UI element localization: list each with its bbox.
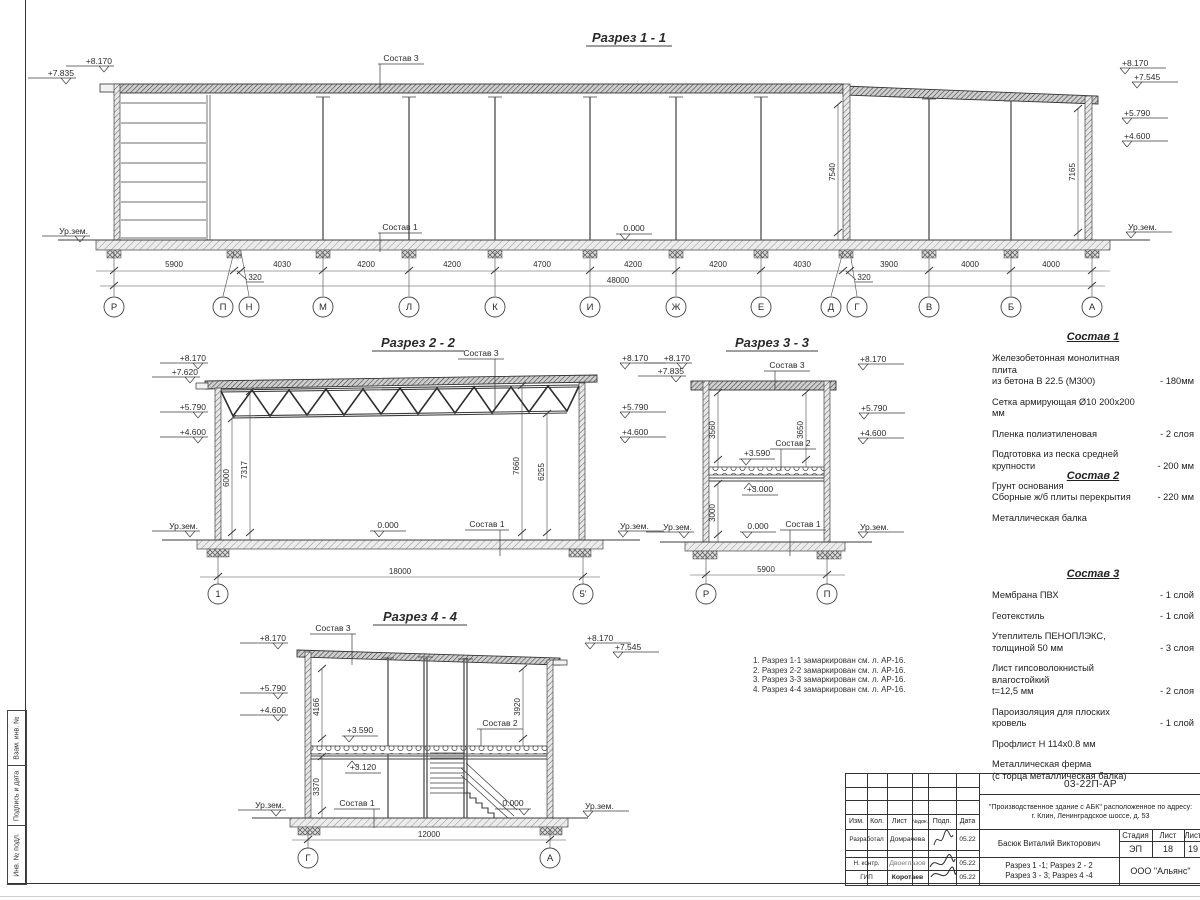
foundation-pads bbox=[693, 551, 841, 559]
dim-label: 4700 bbox=[533, 260, 551, 269]
list-item: Геотекстиль - 1 слой bbox=[992, 611, 1194, 623]
item-value: - 3 слоя bbox=[1160, 643, 1194, 655]
list-item: Сетка армирующая Ø10 200х200 мм bbox=[992, 397, 1194, 420]
ground-level-label: Ур.зем. bbox=[663, 522, 692, 532]
stair-stringers bbox=[461, 763, 517, 819]
sostav-1-title: Состав 1 bbox=[992, 331, 1194, 343]
list-item: Металлическая балка bbox=[992, 513, 1194, 525]
section-2-2: Разрез 2 - 2 6000 7317 7660 6255 Состав … bbox=[152, 335, 666, 604]
level-label: +7.545 bbox=[615, 642, 642, 652]
tb-object: "Производственное здание с АБК" располож… bbox=[979, 794, 1200, 829]
item-value: - 1 слой bbox=[1160, 590, 1194, 602]
level-label: +7.620 bbox=[172, 367, 199, 377]
vdim-label: 3920 bbox=[513, 698, 522, 716]
stair-steps bbox=[464, 793, 494, 818]
dim-label: 320 bbox=[857, 273, 871, 282]
ground-level-label: Ур.зем. bbox=[860, 522, 889, 532]
dim-label: 4200 bbox=[357, 260, 375, 269]
layer-label-sostav1: Состав 1 bbox=[339, 798, 375, 808]
level-label: +8.170 bbox=[1122, 58, 1149, 68]
grid-bubble-label: П bbox=[220, 302, 227, 313]
level-label: +4.600 bbox=[180, 427, 207, 437]
grid-bubble-label: Е bbox=[758, 302, 764, 313]
list-item: Сборные ж/б плиты перекрытия - 220 мм bbox=[992, 492, 1194, 504]
grid-bubble-label: К bbox=[492, 302, 498, 313]
dim-label: 4030 bbox=[793, 260, 811, 269]
tb-col-podp: Подп. bbox=[928, 814, 956, 829]
elevation-zero: 0.000 bbox=[377, 520, 399, 530]
level-label: +5.790 bbox=[180, 402, 207, 412]
floor-slab bbox=[685, 542, 845, 551]
grid-bubble-label: 5' bbox=[579, 589, 586, 600]
ground-level-label: Ур.зем. bbox=[169, 521, 198, 531]
list-item: Мембрана ПВХ - 1 слой bbox=[992, 590, 1194, 602]
roof-slab bbox=[114, 84, 843, 93]
level-label: +4.600 bbox=[860, 428, 887, 438]
level-label: +5.790 bbox=[1124, 108, 1151, 118]
elevation-label: +3.590 bbox=[347, 725, 374, 735]
level-label: +8.170 bbox=[260, 633, 287, 643]
elevation-label: +3.590 bbox=[744, 448, 771, 458]
steel-beam bbox=[311, 756, 547, 759]
wall-right bbox=[579, 383, 585, 540]
item-text: Сборные ж/б плиты перекрытия bbox=[992, 492, 1131, 504]
title-block: Изм. Кол. Лист №док. Подп. Дата Разработ… bbox=[845, 773, 1200, 886]
item-text: Подготовка из песка средней bbox=[992, 449, 1118, 461]
wall-right bbox=[547, 660, 553, 818]
ground-level-label: Ур.зем. bbox=[620, 521, 649, 531]
layer-label-sostav3: Состав 3 bbox=[463, 348, 499, 358]
grid-bubble-label: А bbox=[547, 853, 554, 864]
grid-bubble-label: П bbox=[824, 589, 831, 600]
tb-sheet-label: Лист bbox=[1152, 829, 1184, 841]
vdim-label: 7540 bbox=[828, 163, 837, 181]
tb-sheets-value: 19 bbox=[1184, 841, 1200, 857]
dim-label: 5900 bbox=[165, 260, 183, 269]
dim-label-total: 5900 bbox=[757, 565, 775, 574]
floor-slab bbox=[197, 540, 603, 549]
side-strip: Взам. инв. № Подпись и дата Инв. № подл. bbox=[7, 710, 27, 885]
wall-left bbox=[703, 381, 709, 552]
grid-bubble-label: Ж bbox=[672, 302, 681, 313]
grid-bubble-label: В bbox=[926, 302, 932, 313]
sostav-2-title: Состав 2 bbox=[992, 470, 1194, 482]
roof-slab bbox=[691, 381, 836, 390]
level-label: +8.170 bbox=[180, 353, 207, 363]
item-text: Геотекстиль bbox=[992, 611, 1044, 623]
item-text: толщиной 50 мм bbox=[992, 643, 1106, 655]
list-item: Профлист Н 114х0.8 мм bbox=[992, 739, 1194, 751]
list-item: Утеплитель ПЕНОПЛЭКС, толщиной 50 мм - 3… bbox=[992, 631, 1194, 654]
vdim-label: 7660 bbox=[512, 457, 521, 475]
layer-label-sostav3: Состав 3 bbox=[769, 360, 805, 370]
sostav-3-title: Состав 3 bbox=[992, 568, 1194, 580]
dim-label: 4030 bbox=[273, 260, 291, 269]
note-line: 2. Разрез 2-2 замаркирован см. л. АР-16. bbox=[753, 666, 906, 676]
grid-bubble-label: Г bbox=[305, 853, 310, 864]
grid-bubble-label: Л bbox=[406, 302, 412, 313]
truss-chords bbox=[221, 385, 579, 418]
side-cell: Взам. инв. № bbox=[8, 711, 26, 766]
item-value: - 1 слой bbox=[1160, 718, 1194, 730]
section-title: Разрез 3 - 3 bbox=[735, 335, 810, 350]
grid-bubble-label: Р bbox=[111, 302, 117, 313]
tb-stage-value: ЭП bbox=[1119, 841, 1152, 857]
level-label: +8.170 bbox=[622, 353, 649, 363]
floor-plates bbox=[709, 467, 824, 475]
grid-bubbles bbox=[104, 297, 1102, 317]
item-value: - 2 слоя bbox=[1160, 429, 1194, 441]
item-text: t=12,5 мм bbox=[992, 686, 1144, 698]
tb-role: Н. контр. bbox=[846, 857, 887, 870]
tb-date: 05.22 bbox=[956, 829, 979, 850]
item-text: Металлическая ферма bbox=[992, 759, 1127, 771]
tb-col-list: Лист bbox=[887, 814, 912, 829]
dim-label: 4200 bbox=[709, 260, 727, 269]
list-item: Железобетонная монолитная плита из бетон… bbox=[992, 353, 1194, 388]
foundation-pads bbox=[107, 250, 1099, 258]
side-cell-label: Подпись и дата bbox=[14, 770, 21, 820]
tb-col-kol: Кол. bbox=[867, 814, 887, 829]
side-cell: Подпись и дата bbox=[8, 766, 26, 826]
grid-bubble-label: Р bbox=[703, 589, 709, 600]
wall-left bbox=[215, 388, 221, 540]
floor-slab bbox=[96, 240, 1110, 250]
signature-icon bbox=[930, 854, 956, 877]
layer-label-sostav3: Состав 3 bbox=[383, 53, 419, 63]
item-text: Железобетонная монолитная плита bbox=[992, 353, 1144, 376]
tb-object-line: г. Клин, Ленинградское шоссе, д. 53 bbox=[1032, 812, 1150, 821]
vdim-label: 4166 bbox=[312, 698, 321, 716]
dim-label: 4200 bbox=[443, 260, 461, 269]
level-label: +7.545 bbox=[1134, 72, 1161, 82]
vdim-label: 6000 bbox=[222, 469, 231, 487]
dim-label-total: 48000 bbox=[607, 276, 630, 285]
note-line: 3. Разрез 3-3 замаркирован см. л. АР-16. bbox=[753, 675, 906, 685]
elevation-zero: 0.000 bbox=[623, 223, 645, 233]
tb-sheet-title: Разрез 1 -1; Разрез 2 - 2 Разрез 3 - 3; … bbox=[979, 857, 1119, 885]
item-value: - 220 мм bbox=[1157, 492, 1194, 504]
item-text: Лист гипсоволокнистый влагостойкий bbox=[992, 663, 1144, 686]
wall-right bbox=[1085, 96, 1092, 243]
level-label: +7.835 bbox=[658, 366, 685, 376]
grid-bubble-label: Н bbox=[246, 302, 253, 313]
list-item: Подготовка из песка средней крупности - … bbox=[992, 449, 1194, 472]
note-line: 1. Разрез 1-1 замаркирован см. л. АР-16. bbox=[753, 656, 906, 666]
grid-bubble-label: Б bbox=[1008, 302, 1014, 313]
wall-left bbox=[305, 652, 311, 818]
sheet-edge-line bbox=[0, 896, 1200, 897]
notes: 1. Разрез 1-1 замаркирован см. л. АР-16.… bbox=[753, 656, 906, 694]
grid-bubble-label: М bbox=[319, 302, 327, 313]
tb-col-ndok: №док. bbox=[912, 814, 928, 829]
tb-date: 05.22 bbox=[956, 870, 979, 885]
sostav-2-list: Состав 2 Сборные ж/б плиты перекрытия - … bbox=[992, 470, 1194, 533]
wall-left bbox=[114, 84, 120, 243]
tb-role: Разработал bbox=[846, 829, 887, 850]
vdim-label: 7165 bbox=[1068, 163, 1077, 181]
level-label: +7.835 bbox=[48, 68, 75, 78]
grid-bubble-label: Г bbox=[854, 302, 859, 313]
tb-author: Басюк Виталий Викторович bbox=[979, 829, 1119, 857]
tb-role: ГИП bbox=[846, 870, 887, 885]
vdim-label: 3370 bbox=[312, 778, 321, 796]
dim-label: 4000 bbox=[1042, 260, 1060, 269]
roof-slab bbox=[205, 375, 597, 389]
tb-doc-number: 03-22П-АР bbox=[979, 774, 1200, 794]
note-line: 4. Разрез 4-4 замаркирован см. л. АР-16. bbox=[753, 685, 906, 695]
tb-col-data: Дата bbox=[956, 814, 979, 829]
level-label: +5.790 bbox=[622, 402, 649, 412]
ground-level-label: Ур.зем. bbox=[59, 226, 88, 236]
vdim-label: 6255 bbox=[537, 463, 546, 481]
layer-label-sostav3: Состав 3 bbox=[315, 623, 351, 633]
section-1-1: Разрез 1 - 1 5900 4030 4200 4200 4700 42… bbox=[28, 30, 1178, 317]
tb-stage-label: Стадия bbox=[1119, 829, 1152, 841]
roof-slab bbox=[297, 650, 560, 665]
tb-date: 05.22 bbox=[956, 857, 979, 870]
item-value: - 2 слоя bbox=[1160, 686, 1194, 698]
section-3-3: Разрез 3 - 3 3560 3650 3000 Состав 3 Сос… bbox=[638, 335, 905, 604]
item-text: Металлическая балка bbox=[992, 513, 1087, 525]
tb-object-line: "Производственное здание с АБК" располож… bbox=[989, 803, 1192, 812]
side-cell-label: Взам. инв. № bbox=[14, 716, 21, 759]
list-item: Пароизоляция для плоских кровель - 1 сло… bbox=[992, 707, 1194, 730]
tb-sheet-title-line: Разрез 1 -1; Разрез 2 - 2 bbox=[1005, 861, 1092, 871]
floor-slab bbox=[290, 818, 568, 827]
grid-bubble-label: И bbox=[587, 302, 594, 313]
ground-level-label: Ур.зем. bbox=[585, 801, 614, 811]
tb-sheets-label: Лист bbox=[1184, 829, 1200, 841]
wall-right bbox=[824, 381, 830, 552]
vdim-label: 7317 bbox=[240, 461, 249, 479]
tb-name: Коротаев bbox=[887, 870, 928, 885]
layer-label-sostav2: Состав 2 bbox=[482, 718, 518, 728]
tb-name: Домрачева bbox=[887, 829, 928, 850]
grid-bubble-label: Д bbox=[828, 302, 835, 313]
item-text: из бетона В 22.5 (М300) bbox=[992, 376, 1144, 388]
level-label: +8.170 bbox=[86, 56, 113, 66]
level-label: +8.170 bbox=[587, 633, 614, 643]
dim-label: 4000 bbox=[961, 260, 979, 269]
signatures bbox=[928, 829, 956, 885]
item-text: Утеплитель ПЕНОПЛЭКС, bbox=[992, 631, 1106, 643]
sostav-3-list: Состав 3 Мембрана ПВХ - 1 слой Геотексти… bbox=[992, 568, 1194, 791]
vdim-label: 3650 bbox=[796, 421, 805, 439]
wall-step bbox=[843, 84, 850, 240]
vdim-label: 3000 bbox=[708, 504, 717, 522]
tb-company: ООО "Альянс" bbox=[1119, 857, 1200, 885]
item-value: - 1 слой bbox=[1160, 611, 1194, 623]
tb-sheet-title-line: Разрез 3 - 3; Разрез 4 -4 bbox=[1005, 871, 1092, 881]
elevation-zero: 0.000 bbox=[747, 521, 769, 531]
item-text: Сетка армирующая Ø10 200х200 мм bbox=[992, 397, 1144, 420]
tb-name: Двоеглазов bbox=[887, 857, 928, 870]
roof-slope bbox=[843, 86, 1098, 104]
item-text: Мембрана ПВХ bbox=[992, 590, 1059, 602]
side-cell: Инв. № подл. bbox=[8, 826, 26, 883]
level-label: +4.600 bbox=[1124, 131, 1151, 141]
item-text: Профлист Н 114х0.8 мм bbox=[992, 739, 1096, 751]
elevation-zero: 0.000 bbox=[502, 798, 524, 808]
dim-label: 3900 bbox=[880, 260, 898, 269]
section-4-4: Разрез 4 - 4 4166 3920 3370 Состав 3 Сос… bbox=[238, 609, 659, 868]
level-label: +4.600 bbox=[260, 705, 287, 715]
grid-bubble-label: 1 bbox=[215, 589, 220, 600]
dim-label-total: 18000 bbox=[389, 567, 412, 576]
level-label: +5.790 bbox=[861, 403, 888, 413]
ground-level-label: Ур.зем. bbox=[255, 800, 284, 810]
signature-icon bbox=[934, 830, 953, 845]
tb-sheet-value: 18 bbox=[1152, 841, 1184, 857]
drawing-sheet: Разрез 1 - 1 5900 4030 4200 4200 4700 42… bbox=[0, 0, 1200, 900]
grid-bubble-label: А bbox=[1089, 302, 1096, 313]
list-item: Лист гипсоволокнистый влагостойкий t=12,… bbox=[992, 663, 1194, 698]
layer-label-sostav1: Состав 1 bbox=[469, 519, 505, 529]
side-cell-label: Инв. № подл. bbox=[14, 833, 21, 877]
list-item: Пленка полиэтиленовая - 2 слоя bbox=[992, 429, 1194, 441]
level-label: +8.170 bbox=[664, 353, 691, 363]
section-title: Разрез 1 - 1 bbox=[592, 30, 666, 45]
section-title: Разрез 2 - 2 bbox=[381, 335, 456, 350]
steel-beam bbox=[709, 478, 824, 481]
level-label: +5.790 bbox=[260, 683, 287, 693]
level-label: +4.600 bbox=[622, 427, 649, 437]
item-text: Пленка полиэтиленовая bbox=[992, 429, 1097, 441]
dim-label-total: 12000 bbox=[418, 830, 441, 839]
ground-level-label: Ур.зем. bbox=[1128, 222, 1157, 232]
foundation-pads bbox=[207, 549, 591, 557]
layer-label-sostav1: Состав 1 bbox=[382, 222, 418, 232]
vdim-label: 3560 bbox=[708, 421, 717, 439]
tb-col-izm: Изм. bbox=[846, 814, 867, 829]
dim-label: 320 bbox=[248, 273, 262, 282]
layer-label-sostav2: Состав 2 bbox=[775, 438, 811, 448]
level-label: +8.170 bbox=[860, 354, 887, 364]
dim-label: 4200 bbox=[624, 260, 642, 269]
layer-label-sostav1: Состав 1 bbox=[785, 519, 821, 529]
item-text: Пароизоляция для плоских кровель bbox=[992, 707, 1144, 730]
item-value: - 180мм bbox=[1160, 376, 1194, 388]
floor-plates bbox=[311, 746, 547, 754]
section-title: Разрез 4 - 4 bbox=[383, 609, 458, 624]
